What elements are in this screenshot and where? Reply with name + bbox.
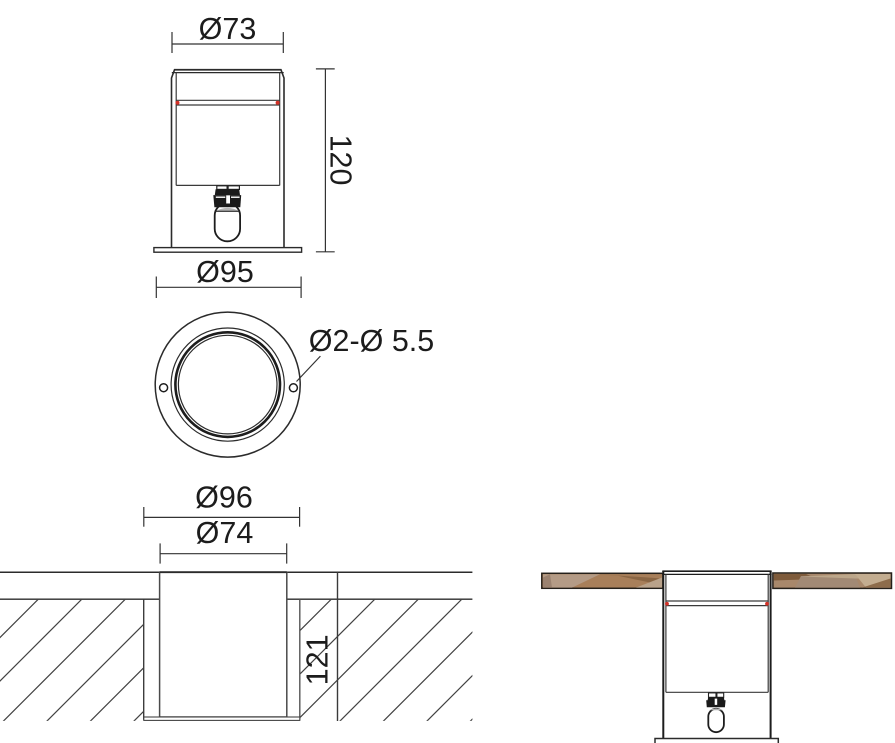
- svg-text:Ø73: Ø73: [199, 12, 257, 46]
- svg-text:Ø2-Ø 5.5: Ø2-Ø 5.5: [309, 324, 434, 358]
- svg-text:Ø74: Ø74: [196, 516, 254, 550]
- svg-text:121: 121: [301, 634, 335, 685]
- svg-text:Ø96: Ø96: [195, 481, 253, 515]
- svg-text:120: 120: [324, 135, 358, 186]
- svg-text:Ø95: Ø95: [196, 255, 254, 289]
